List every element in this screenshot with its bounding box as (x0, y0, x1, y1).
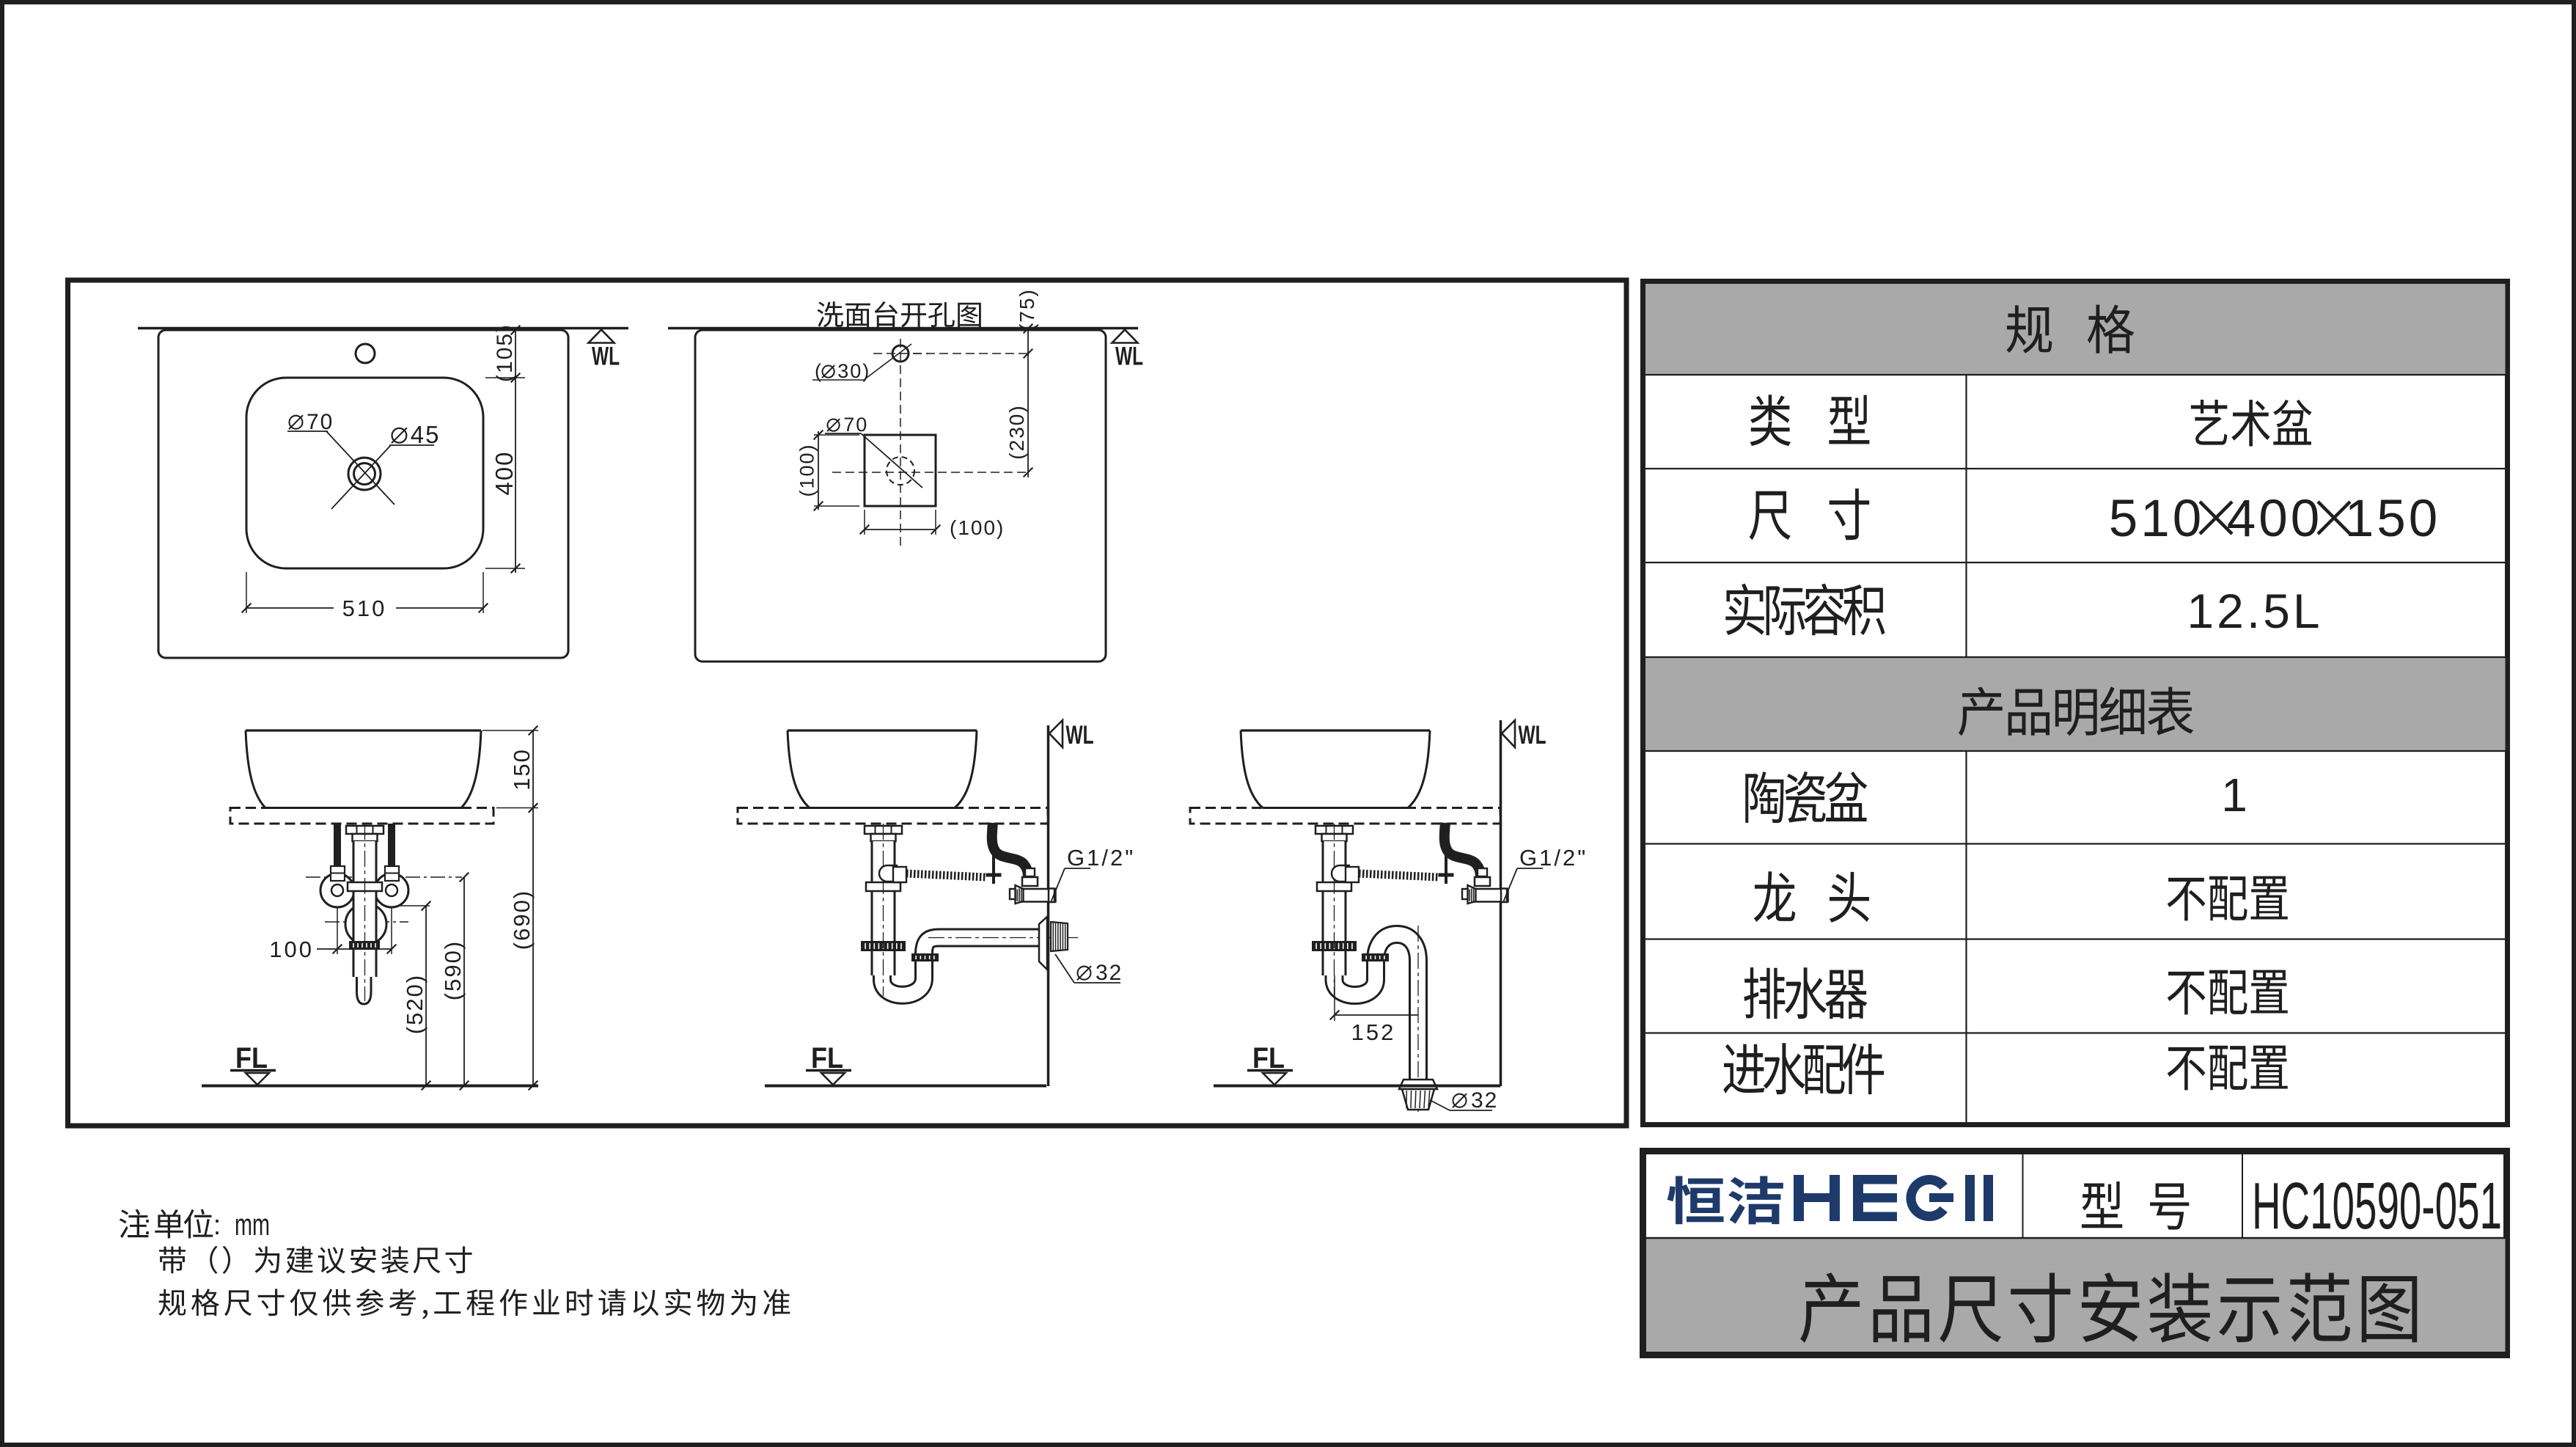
svg-text:152: 152 (1351, 1019, 1396, 1045)
svg-text:150: 150 (2345, 490, 2440, 548)
svg-text:(590): (590) (440, 940, 466, 1000)
svg-text:(100): (100) (950, 516, 1005, 539)
svg-text:mm: mm (235, 1207, 270, 1242)
svg-text:70: 70 (843, 414, 868, 436)
svg-text:(: ( (815, 360, 821, 382)
svg-text:1: 1 (2221, 769, 2247, 821)
svg-text:510: 510 (2109, 490, 2204, 548)
svg-text:32: 32 (1096, 961, 1123, 985)
svg-text::: : (213, 1210, 221, 1241)
svg-text:12.5L: 12.5L (2187, 584, 2322, 638)
svg-text:(520): (520) (402, 974, 428, 1034)
svg-text::: : (144, 1210, 152, 1241)
svg-text:(230): (230) (1005, 404, 1028, 459)
svg-text:70: 70 (307, 410, 334, 434)
svg-text:400: 400 (491, 450, 518, 495)
svg-text:(690): (690) (509, 890, 535, 950)
svg-text:(75): (75) (1016, 288, 1038, 331)
svg-text:WL: WL (592, 342, 620, 371)
svg-text:WL: WL (1115, 342, 1143, 371)
svg-text:400: 400 (2227, 490, 2322, 548)
svg-text:G1/2": G1/2" (1519, 845, 1588, 871)
svg-text:30): 30) (837, 360, 870, 382)
svg-text:150: 150 (509, 748, 535, 791)
svg-text:G1/2": G1/2" (1067, 845, 1135, 871)
svg-text:510: 510 (342, 596, 387, 621)
svg-text:(105): (105) (493, 323, 517, 382)
svg-text:WL: WL (1519, 721, 1546, 750)
svg-text:(100): (100) (796, 443, 818, 497)
svg-text:WL: WL (1066, 721, 1094, 750)
svg-text:100: 100 (269, 937, 314, 962)
svg-text:45: 45 (411, 421, 441, 448)
svg-text:HC10590-051: HC10590-051 (2252, 1170, 2502, 1243)
svg-text:32: 32 (1471, 1088, 1498, 1113)
